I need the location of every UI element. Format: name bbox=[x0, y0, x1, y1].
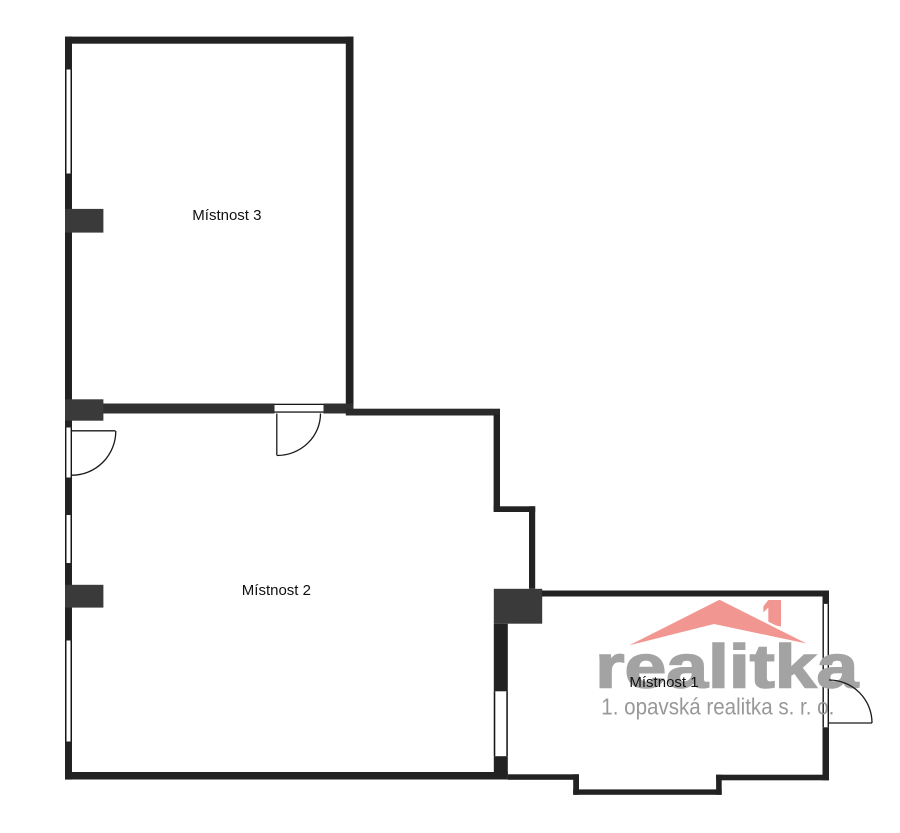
svg-text:Místnost 3: Místnost 3 bbox=[192, 207, 261, 224]
svg-text:Místnost 2: Místnost 2 bbox=[242, 582, 311, 599]
svg-text:1. opavská realitka s. r. o.: 1. opavská realitka s. r. o. bbox=[601, 693, 834, 719]
svg-text:Místnost 1: Místnost 1 bbox=[629, 674, 698, 691]
